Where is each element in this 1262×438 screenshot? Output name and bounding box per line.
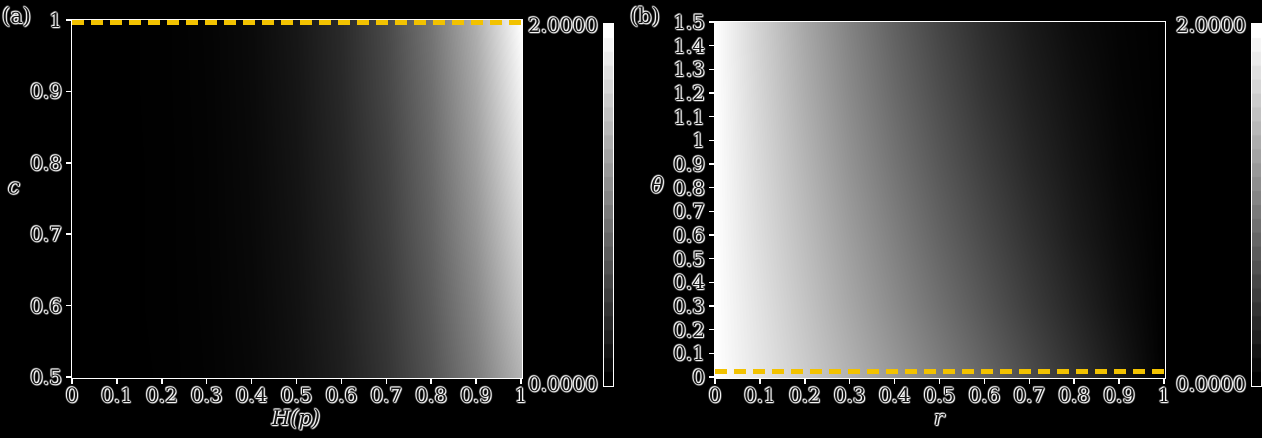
panel-b-heatmap — [714, 21, 1166, 379]
panel_b-xtick — [804, 379, 806, 384]
panel_a-xtick — [475, 379, 477, 384]
figure-heatmap-pair: (a) c H(p) 2.0000 0.0000 (b) θ r 2.0000 … — [0, 0, 1262, 438]
panel_a-xtick-label: 0.5 — [277, 385, 317, 405]
panel_b-xtick-label: 1 — [1144, 385, 1184, 405]
panel_a-xtick — [386, 379, 388, 384]
panel_b-xtick — [939, 379, 941, 384]
panel-b-colorbar-max: 2.0000 — [1176, 15, 1246, 35]
panel_b-ytick-label: 0.7 — [651, 201, 705, 221]
panel_b-ytick — [709, 329, 714, 331]
panel-b-heatmap-canvas — [715, 22, 1165, 378]
panel_a-xtick-label: 0.6 — [321, 385, 361, 405]
panel_b-ytick-label: 1.1 — [651, 107, 705, 127]
panel_b-ytick — [709, 45, 714, 47]
panel_b-ytick — [709, 21, 714, 23]
panel_b-ytick — [709, 376, 714, 378]
panel_b-ytick-label: 1 — [651, 130, 705, 150]
panel_b-ytick-label: 0.5 — [651, 249, 705, 269]
panel-a-heatmap-canvas — [72, 20, 522, 378]
panel_a-xtick — [520, 379, 522, 384]
panel_b-ytick-label: 0.1 — [651, 343, 705, 363]
panel_a-ytick — [66, 19, 71, 21]
panel_b-ytick-label: 0.8 — [651, 178, 705, 198]
panel_a-xtick-label: 0.4 — [232, 385, 272, 405]
panel_a-ytick-label: 0.5 — [8, 367, 62, 387]
panel_b-xtick — [849, 379, 851, 384]
panel_b-ytick-label: 0.9 — [651, 154, 705, 174]
panel_b-ytick-label: 0.3 — [651, 296, 705, 316]
panel_b-ytick — [709, 140, 714, 142]
panel_a-ytick — [66, 233, 71, 235]
panel_b-xtick-label: 0.1 — [740, 385, 780, 405]
panel_a-ytick-label: 0.9 — [8, 81, 62, 101]
panel_b-ytick — [709, 92, 714, 94]
panel_b-xtick — [1163, 379, 1165, 384]
panel_a-xtick — [341, 379, 343, 384]
panel-b-colorbar-min: 0.0000 — [1176, 374, 1246, 394]
panel-b-dashed-line-theta0 — [715, 369, 1165, 374]
panel_a-xtick-label: 1 — [501, 385, 541, 405]
panel_a-xtick — [71, 379, 73, 384]
panel_a-ytick-label: 1 — [8, 10, 62, 30]
panel_b-xtick — [1118, 379, 1120, 384]
panel_b-ytick — [709, 163, 714, 165]
panel_b-ytick — [709, 305, 714, 307]
panel_a-ytick-label: 0.7 — [8, 224, 62, 244]
panel_b-xtick — [759, 379, 761, 384]
panel_a-xtick — [296, 379, 298, 384]
panel_b-xtick-label: 0.4 — [875, 385, 915, 405]
panel_b-xtick-label: 0.9 — [1099, 385, 1139, 405]
panel-a-dashed-line-c1 — [72, 20, 522, 25]
panel_a-xtick — [251, 379, 253, 384]
panel_a-ytick — [66, 376, 71, 378]
panel_a-xtick — [430, 379, 432, 384]
panel_b-xtick — [894, 379, 896, 384]
panel_b-ytick — [709, 116, 714, 118]
panel_b-xtick-label: 0.3 — [830, 385, 870, 405]
panel_a-xtick-label: 0.9 — [456, 385, 496, 405]
panel_b-ytick-label: 0.2 — [651, 320, 705, 340]
panel-b-colorbar-canvas — [1252, 24, 1261, 386]
panel_a-xtick — [161, 379, 163, 384]
panel_a-xtick — [206, 379, 208, 384]
panel_b-ytick — [709, 282, 714, 284]
panel_b-ytick-label: 0.6 — [651, 225, 705, 245]
panel_a-xtick-label: 0.1 — [97, 385, 137, 405]
panel_b-xtick — [984, 379, 986, 384]
panel_a-ytick-label: 0.8 — [8, 153, 62, 173]
panel_a-ytick — [66, 91, 71, 93]
panel_b-xtick-label: 0.2 — [785, 385, 825, 405]
panel_b-ytick-label: 1.5 — [651, 12, 705, 32]
panel_a-ytick — [66, 305, 71, 307]
panel_b-xtick — [1029, 379, 1031, 384]
panel_b-ytick-label: 1.2 — [651, 83, 705, 103]
panel_b-ytick-label: 0 — [651, 367, 705, 387]
panel_b-ytick — [709, 211, 714, 213]
panel-a-colorbar-max: 2.0000 — [528, 15, 598, 35]
panel_b-ytick-label: 1.3 — [651, 59, 705, 79]
panel_a-xtick-label: 0.8 — [411, 385, 451, 405]
panel-a-ylabel: c — [8, 177, 20, 198]
panel_b-xtick-label: 0.7 — [1009, 385, 1049, 405]
panel_a-ytick-label: 0.6 — [8, 296, 62, 316]
panel_a-xtick-label: 0.7 — [366, 385, 406, 405]
panel_b-xtick-label: 0.8 — [1054, 385, 1094, 405]
panel-a-heatmap — [71, 19, 523, 379]
panel_b-ytick-label: 1.4 — [651, 36, 705, 56]
panel-a-colorbar — [603, 23, 614, 387]
panel_b-ytick — [709, 187, 714, 189]
panel_b-xtick-label: 0.6 — [964, 385, 1004, 405]
panel-a-colorbar-canvas — [604, 24, 613, 386]
panel_b-xtick — [714, 379, 716, 384]
panel_b-xtick-label: 0.5 — [920, 385, 960, 405]
panel_b-ytick — [709, 69, 714, 71]
panel-a-xlabel: H(p) — [272, 408, 320, 429]
panel_b-xtick — [1073, 379, 1075, 384]
panel-b-colorbar — [1251, 23, 1262, 387]
panel_a-xtick — [116, 379, 118, 384]
panel_a-xtick-label: 0.2 — [142, 385, 182, 405]
panel_b-ytick — [709, 353, 714, 355]
panel_b-ytick — [709, 234, 714, 236]
panel_b-ytick-label: 0.4 — [651, 272, 705, 292]
panel_b-ytick — [709, 258, 714, 260]
panel_a-ytick — [66, 162, 71, 164]
panel_a-xtick-label: 0.3 — [187, 385, 227, 405]
panel-b-xlabel: r — [934, 408, 944, 429]
